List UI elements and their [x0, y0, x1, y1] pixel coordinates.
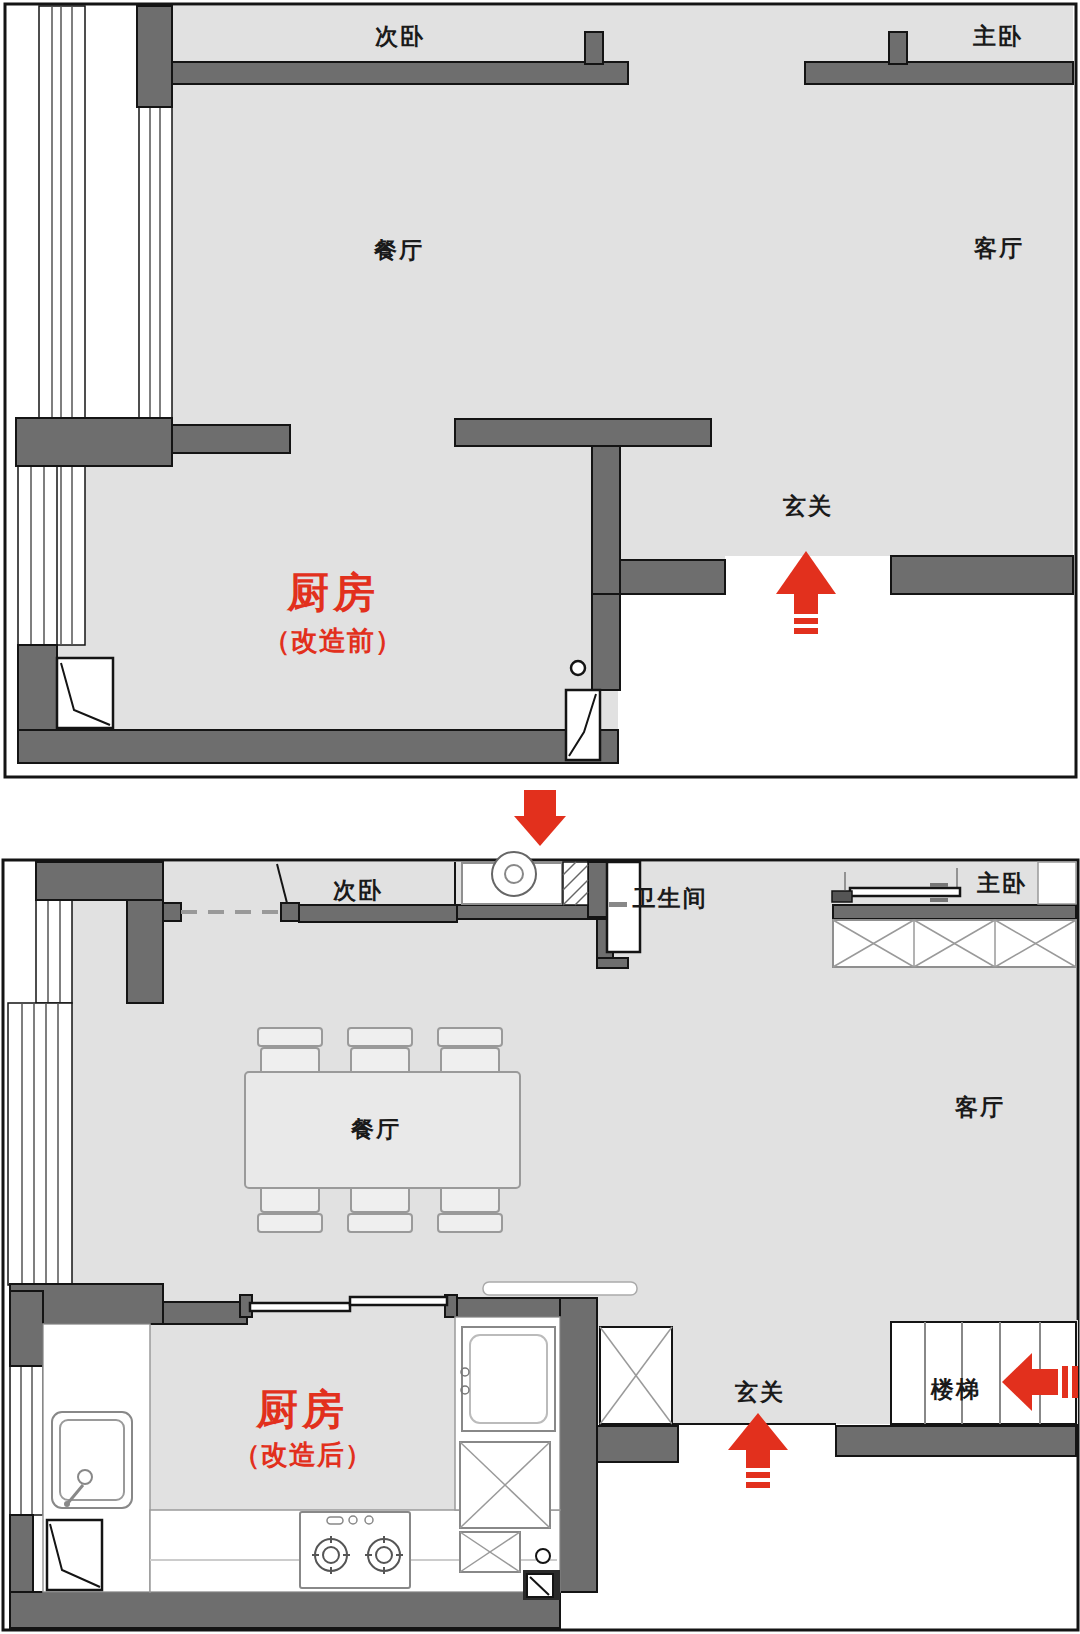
after-label-stairs: 楼梯	[930, 1376, 981, 1402]
before-outside-area	[620, 594, 1073, 775]
after-label-bathroom: 卫生间	[632, 885, 708, 911]
after-label-entry: 玄关	[734, 1379, 785, 1405]
before-label-entry: 玄关	[782, 493, 833, 519]
before-label-secondary-bedroom: 次卧	[375, 23, 425, 49]
kitchen-cabinets	[460, 1327, 560, 1600]
shoe-cabinet-x-icon	[600, 1327, 672, 1424]
duct-hatch	[563, 862, 588, 905]
wardrobe-x-icon	[833, 920, 1076, 967]
after-label-master-bedroom: 主卧	[976, 870, 1027, 896]
stove-icon	[300, 1512, 410, 1588]
plans-svg: 次卧 主卧 餐厅 客厅 玄关 厨房 （改造前）	[0, 0, 1080, 1634]
after-label-dining: 餐厅	[350, 1116, 401, 1142]
sink-icon	[52, 1412, 132, 1508]
after-label-secondary-bedroom: 次卧	[333, 877, 383, 903]
before-label-dining: 餐厅	[373, 237, 424, 263]
after-outside-area	[597, 1456, 1076, 1628]
before-label-kitchen: 厨房	[286, 569, 379, 616]
before-label-kitchen-note: （改造前）	[263, 626, 403, 656]
floor-plan-before: 次卧 主卧 餐厅 客厅 玄关 厨房 （改造前）	[5, 4, 1076, 777]
floor-plan-after: 次卧 卫生间 主卧 餐厅 客厅 玄关 楼梯 厨房 （改造后）	[3, 852, 1078, 1630]
transform-down-arrow-icon	[514, 790, 566, 846]
after-balcony-door	[47, 1520, 102, 1590]
after-label-living: 客厅	[954, 1094, 1005, 1120]
before-label-living: 客厅	[973, 235, 1024, 261]
after-label-kitchen: 厨房	[255, 1386, 348, 1433]
after-label-kitchen-note: （改造后）	[233, 1440, 373, 1470]
before-balcony-door	[57, 658, 113, 728]
before-label-master-bedroom: 主卧	[972, 23, 1023, 49]
master-niche	[1038, 862, 1076, 904]
floor-plan-comparison: 次卧 主卧 餐厅 客厅 玄关 厨房 （改造前）	[0, 0, 1080, 1634]
